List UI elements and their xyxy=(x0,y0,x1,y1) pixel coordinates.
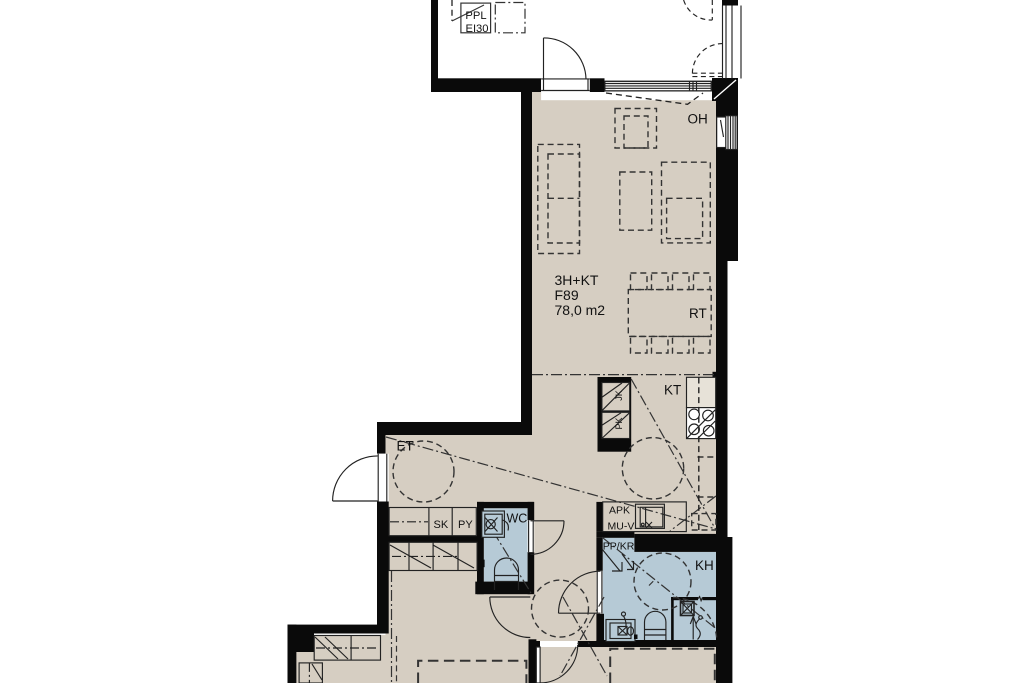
svg-text:EI30: EI30 xyxy=(465,23,488,35)
svg-text:PPL: PPL xyxy=(465,10,486,22)
svg-text:KT: KT xyxy=(664,383,681,398)
svg-text:KH: KH xyxy=(695,558,714,573)
svg-text:PP/KR: PP/KR xyxy=(603,541,635,553)
svg-text:PY: PY xyxy=(458,519,473,531)
svg-text:F89: F89 xyxy=(555,287,579,303)
svg-text:MU-V: MU-V xyxy=(608,521,635,533)
svg-text:JK: JK xyxy=(614,390,624,401)
svg-text:3H+KT: 3H+KT xyxy=(555,272,599,288)
svg-text:78,0 m2: 78,0 m2 xyxy=(555,302,606,318)
svg-text:SK: SK xyxy=(434,519,449,531)
svg-text:RT: RT xyxy=(689,306,707,321)
svg-text:APK: APK xyxy=(609,505,630,517)
svg-text:PK: PK xyxy=(614,417,624,429)
svg-text:WC: WC xyxy=(507,512,528,526)
svg-text:OH: OH xyxy=(688,112,708,127)
svg-text:ET: ET xyxy=(397,439,414,454)
